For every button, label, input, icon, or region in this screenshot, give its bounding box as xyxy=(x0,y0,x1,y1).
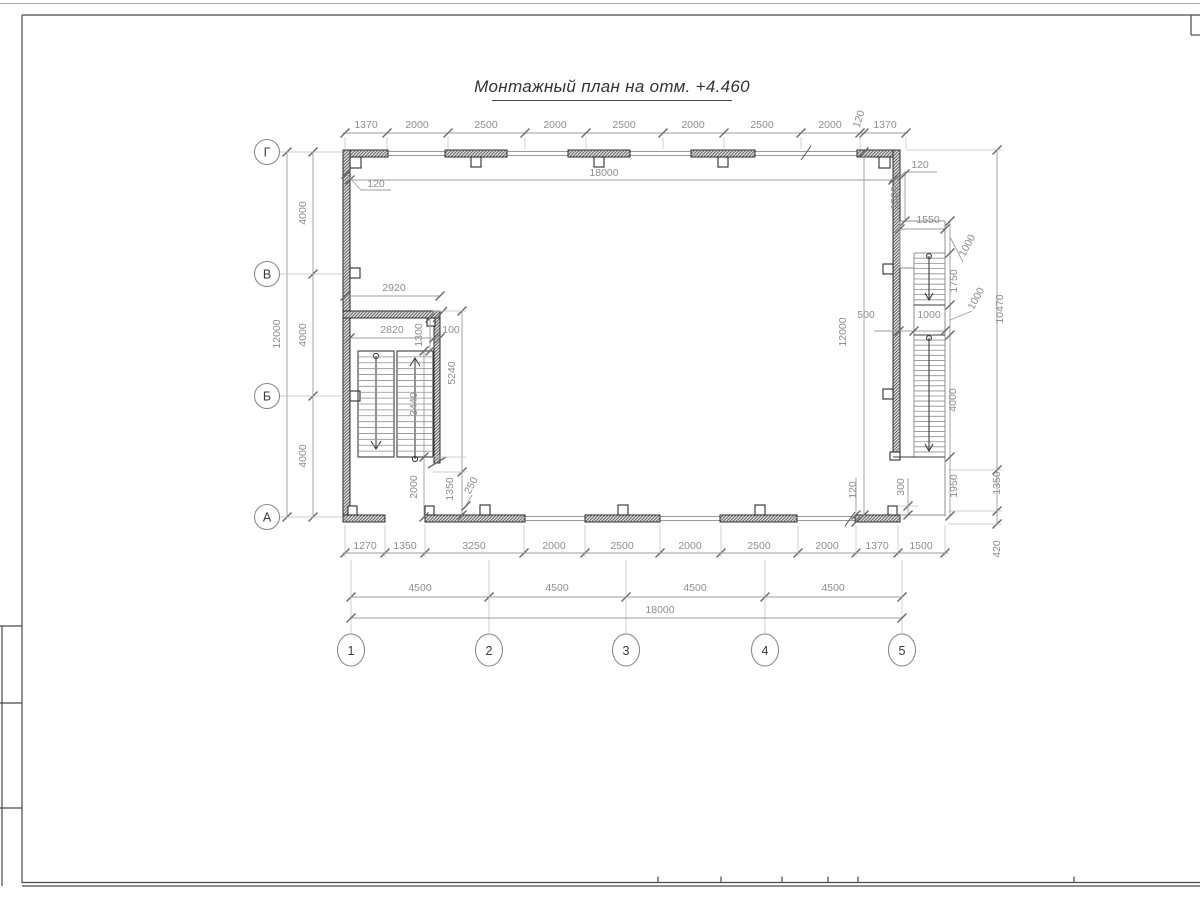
dim-label: 1000 xyxy=(966,285,988,311)
door-jamb xyxy=(888,506,897,515)
dim-label: 2000 xyxy=(542,540,566,552)
pilaster xyxy=(350,268,360,278)
dim-label: 2500 xyxy=(750,119,774,131)
drawing-title: Монтажный план на отм. +4.460 xyxy=(474,77,750,101)
dim-label: 4000 xyxy=(297,323,309,347)
axis-label: А xyxy=(263,511,272,525)
dim-label: 1500 xyxy=(909,540,933,552)
dim-label: 100 xyxy=(442,324,460,336)
dim-label: 500 xyxy=(857,309,875,321)
top-wall xyxy=(343,146,900,168)
dim-label: 4500 xyxy=(683,582,707,594)
sheet-corner-box xyxy=(1191,15,1200,35)
dim-label: 2920 xyxy=(382,282,406,294)
dim-label: 1000 xyxy=(957,232,979,258)
dim-label: 2500 xyxy=(612,119,636,131)
dim-label: 12000 xyxy=(837,317,849,346)
dim-label: 2500 xyxy=(610,540,634,552)
dim-label: 4500 xyxy=(545,582,569,594)
dim-row-top: 1370 2000 2500 2000 2500 2000 2500 2000 … xyxy=(341,109,911,149)
drawing-sheet: Монтажный план на отм. +4.460 xyxy=(0,0,1200,900)
axis-label: 1 xyxy=(348,644,355,658)
dim-label: 2500 xyxy=(747,540,771,552)
pilaster xyxy=(883,264,893,274)
dim-label: 1270 xyxy=(353,540,377,552)
dim-label: 3440 xyxy=(408,392,420,416)
dim-label: 4500 xyxy=(408,582,432,594)
dim-label: 1300 xyxy=(413,323,425,347)
axis-label: 3 xyxy=(623,644,630,658)
dim-label: 5240 xyxy=(446,361,458,385)
dim-top-inner: 18000 xyxy=(346,167,898,185)
dim-label: 120 xyxy=(367,178,385,190)
dim-label: 2000 xyxy=(543,119,567,131)
dim-label: 1350 xyxy=(393,540,417,552)
dim-label: 120 xyxy=(847,481,859,499)
dim-label: 4000 xyxy=(947,388,959,412)
pilaster xyxy=(883,389,893,399)
dim-right: 120 1500 1550 1000 1750 1000 4000 1950 1… xyxy=(837,146,1006,558)
external-stair xyxy=(893,221,945,516)
dim-row-bottom-1: 1270 1350 3250 2000 2500 2000 2500 2000 … xyxy=(341,525,950,558)
sheet-frame xyxy=(0,4,1200,887)
drawing-title-text: Монтажный план на отм. +4.460 xyxy=(474,77,750,96)
corner-pilaster xyxy=(879,157,890,168)
dim-label: 18000 xyxy=(589,167,618,179)
dim-left: 4000 4000 4000 12000 xyxy=(271,148,343,522)
door-jamb xyxy=(425,506,434,515)
dim-label: 420 xyxy=(991,540,1003,558)
dim-label: 1950 xyxy=(948,474,960,498)
dim-label: 1000 xyxy=(917,309,941,321)
pilaster xyxy=(755,505,765,515)
dim-label: 2000 xyxy=(815,540,839,552)
dim-label: 12000 xyxy=(271,319,283,348)
door-jamb xyxy=(348,506,357,515)
dim-label: 2000 xyxy=(678,540,702,552)
axis-label: В xyxy=(263,268,271,282)
dim-label: 2000 xyxy=(681,119,705,131)
axis-label: 5 xyxy=(899,644,906,658)
dim-label: 120 xyxy=(851,109,868,130)
dim-label: 250 xyxy=(462,475,481,496)
dim-label: 2000 xyxy=(408,475,420,499)
axis-label: Г xyxy=(264,146,271,160)
dim-label: 1370 xyxy=(865,540,889,552)
dim-label: 300 xyxy=(895,478,907,496)
dim-label: 4000 xyxy=(297,444,309,468)
axis-label: 4 xyxy=(762,644,769,658)
dim-label: 1370 xyxy=(873,119,897,131)
pilaster xyxy=(480,505,490,515)
dim-label: 1750 xyxy=(948,269,960,293)
dim-label: 2820 xyxy=(380,324,404,336)
dim-label: 1500 xyxy=(889,186,901,210)
dim-label: 18000 xyxy=(645,604,674,616)
dim-label: 1370 xyxy=(354,119,378,131)
dim-label: 3250 xyxy=(462,540,486,552)
pilaster xyxy=(471,157,481,167)
walls xyxy=(343,146,900,526)
dim-label: 4500 xyxy=(821,582,845,594)
dim-label: 1350 xyxy=(444,477,456,501)
dim-label: 120 xyxy=(911,159,929,171)
dim-label: 2000 xyxy=(818,119,842,131)
dim-label: 10470 xyxy=(994,294,1006,323)
dim-row-bottom-2: 4500 4500 4500 4500 xyxy=(347,560,907,634)
axis-label: 2 xyxy=(486,644,493,658)
dim-label: 2000 xyxy=(405,119,429,131)
axis-grid-columns: 1 2 3 4 5 xyxy=(338,634,916,666)
dim-label: 2500 xyxy=(474,119,498,131)
pilaster xyxy=(718,157,728,167)
corner-pilaster xyxy=(350,157,361,168)
pilaster xyxy=(618,505,628,515)
wall-end xyxy=(890,452,900,460)
bottom-wall xyxy=(343,505,900,526)
dim-row-bottom-total: 18000 xyxy=(347,604,907,623)
pilaster xyxy=(594,157,604,167)
axis-label: Б xyxy=(263,390,271,404)
stair-flight-down xyxy=(358,351,394,457)
dim-label: 4000 xyxy=(297,201,309,225)
dim-label: 1550 xyxy=(916,214,940,226)
